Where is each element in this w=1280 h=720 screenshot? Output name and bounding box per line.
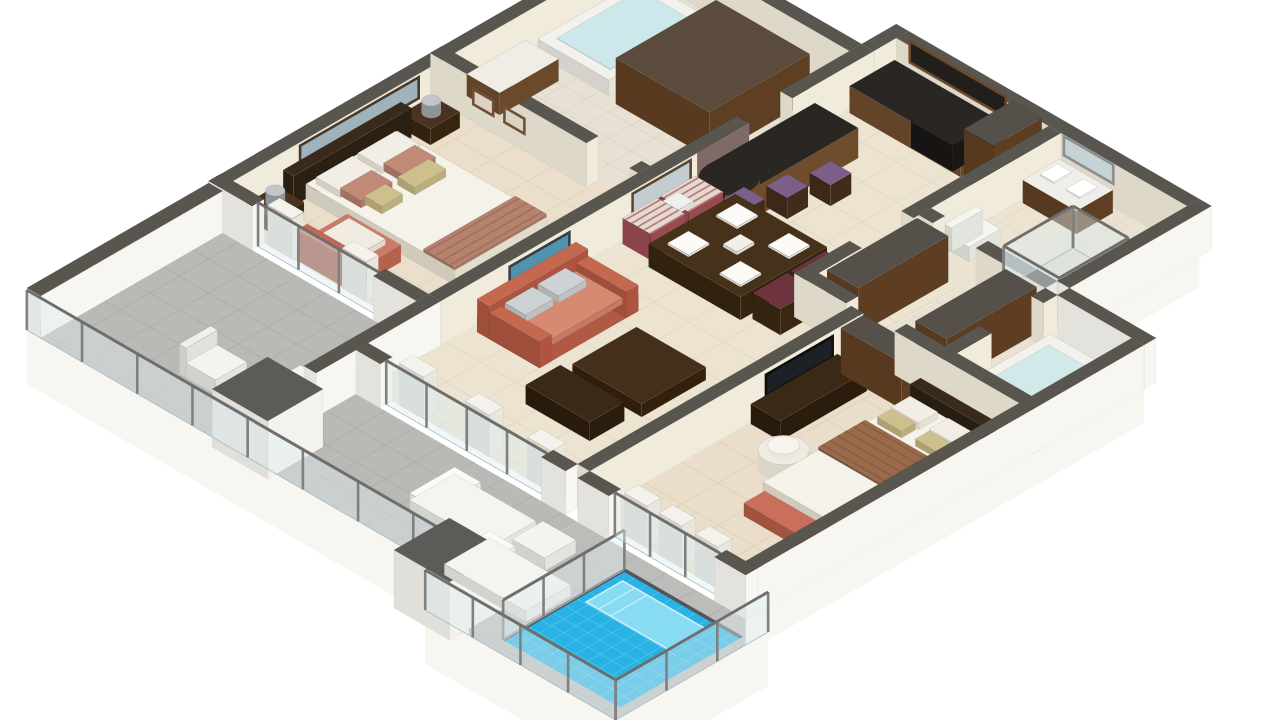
floor-plan-image <box>0 0 1280 720</box>
railing-post <box>614 493 617 537</box>
floor-plan-3d-render <box>0 0 1280 720</box>
railing-post <box>542 577 545 617</box>
railing-post <box>425 384 428 428</box>
railing-post <box>1072 206 1075 248</box>
railing-post <box>649 513 652 557</box>
railing-post <box>506 430 509 474</box>
railing-post <box>465 407 468 451</box>
railing-post <box>665 651 668 691</box>
railing-post <box>583 553 586 593</box>
railing-post <box>614 680 617 720</box>
railing-post <box>191 386 194 426</box>
railing-post <box>297 226 300 270</box>
lamp <box>421 95 441 118</box>
railing-post <box>424 570 427 610</box>
railing-post <box>26 290 29 330</box>
railing-post <box>716 621 719 661</box>
railing-post <box>338 249 341 293</box>
railing-post <box>81 322 84 362</box>
railing-post <box>767 592 770 632</box>
railing-post <box>246 418 249 458</box>
railing-post <box>136 354 139 394</box>
railing-post <box>385 361 388 405</box>
railing-post <box>567 653 570 693</box>
railing-post <box>684 533 687 577</box>
wicker-chair-cushion <box>768 436 800 459</box>
railing-post <box>302 449 305 489</box>
railing-post <box>357 481 360 521</box>
railing-post <box>257 203 260 247</box>
railing-post <box>472 598 475 638</box>
railing-post <box>519 625 522 665</box>
